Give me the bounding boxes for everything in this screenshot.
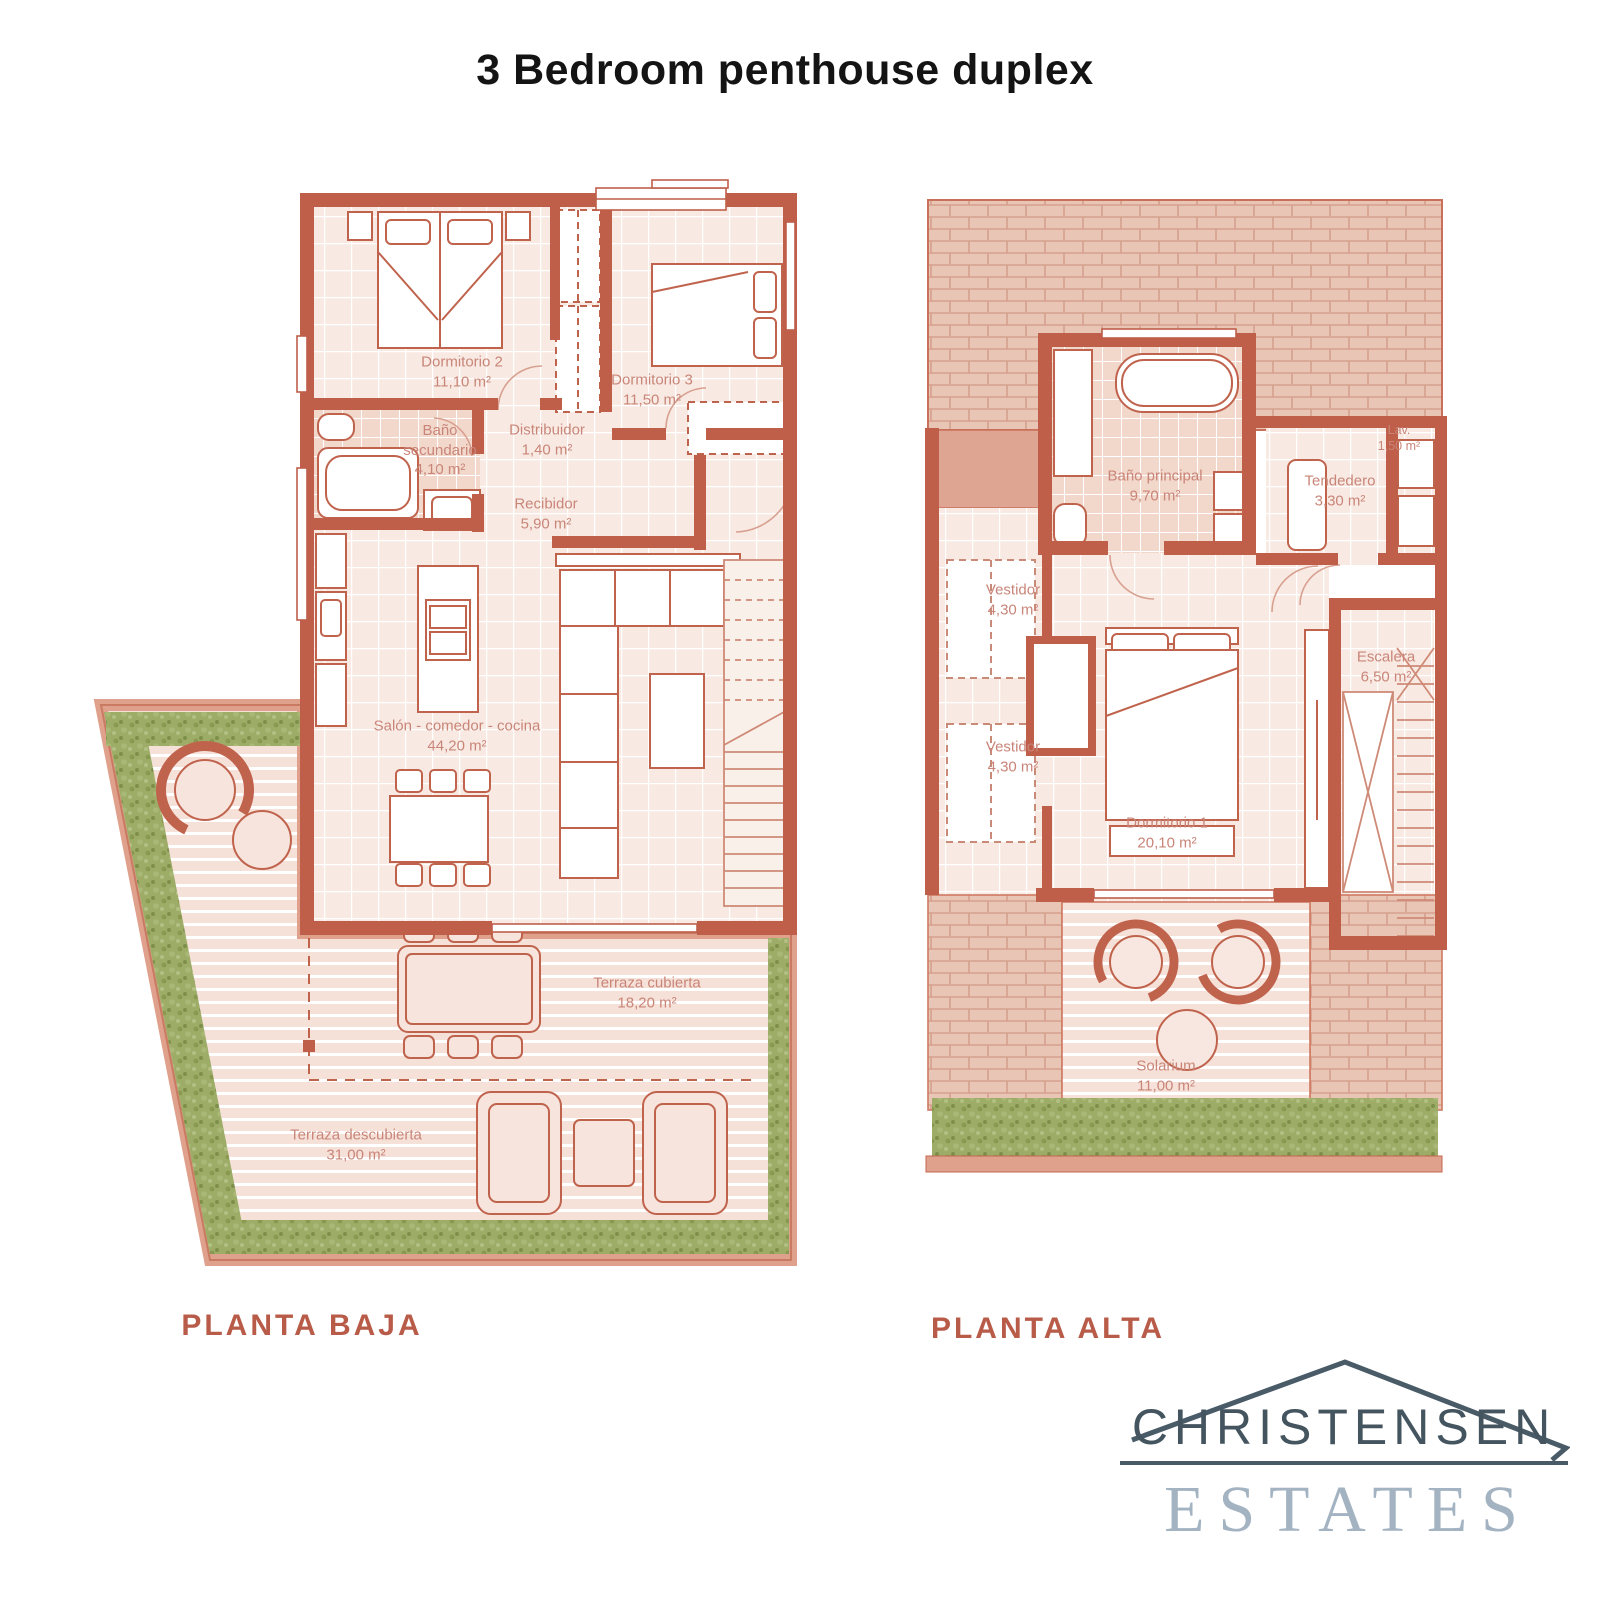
room-label-recibidor: Recibidor 5,90 m² <box>514 495 577 534</box>
hall-closet <box>556 210 600 412</box>
room-label-solarium: Solarium 11,00 m² <box>1136 1057 1195 1096</box>
dining-set <box>390 770 490 886</box>
closet-box <box>1030 640 1092 752</box>
room-label-salon: Salón - comedor - cocina 44,20 m² <box>374 717 541 756</box>
room-label-vestidor-1: Vestidor 4,30 m² <box>986 581 1040 620</box>
room-label-dormitorio-3: Dormitorio 3 11,50 m² <box>611 371 693 410</box>
room-label-dormitorio-1: Dormitorio 1 20,10 m² <box>1126 814 1208 853</box>
room-label-tendedero: Tendedero 3,30 m² <box>1305 472 1376 511</box>
room-label-escalera: Escalera 6,50 m² <box>1357 648 1415 687</box>
christensen-estates-logo: CHRISTENSEN ESTATES <box>1118 1352 1570 1548</box>
room-label-lav: Lav. 1,50 m² <box>1378 422 1420 455</box>
room-label-distribuidor: Distribuidor 1,40 m² <box>509 421 585 460</box>
logo-wordmark-top: CHRISTENSEN <box>1118 1398 1570 1456</box>
room-label-terraza-cubierta: Terraza cubierta 18,20 m² <box>593 974 701 1013</box>
staircase <box>724 560 784 906</box>
logo-divider <box>1120 1461 1568 1465</box>
floor-plan-page: 3 Bedroom penthouse duplex <box>0 0 1600 1600</box>
room-label-bano-principal: Baño principal 9,70 m² <box>1107 467 1202 506</box>
room-label-terraza-descubierta: Terraza descubierta 31,00 m² <box>290 1126 422 1165</box>
room-label-vestidor-2: Vestidor 4,30 m² <box>986 738 1040 777</box>
caption-planta-baja: PLANTA BAJA <box>181 1309 422 1343</box>
room-label-dormitorio-2: Dormitorio 2 11,10 m² <box>421 353 503 392</box>
caption-planta-alta: PLANTA ALTA <box>931 1312 1165 1346</box>
logo-wordmark-bottom: ESTATES <box>1118 1472 1570 1548</box>
room-label-bano-secundario: Baño secundario 4,10 m² <box>384 421 496 480</box>
